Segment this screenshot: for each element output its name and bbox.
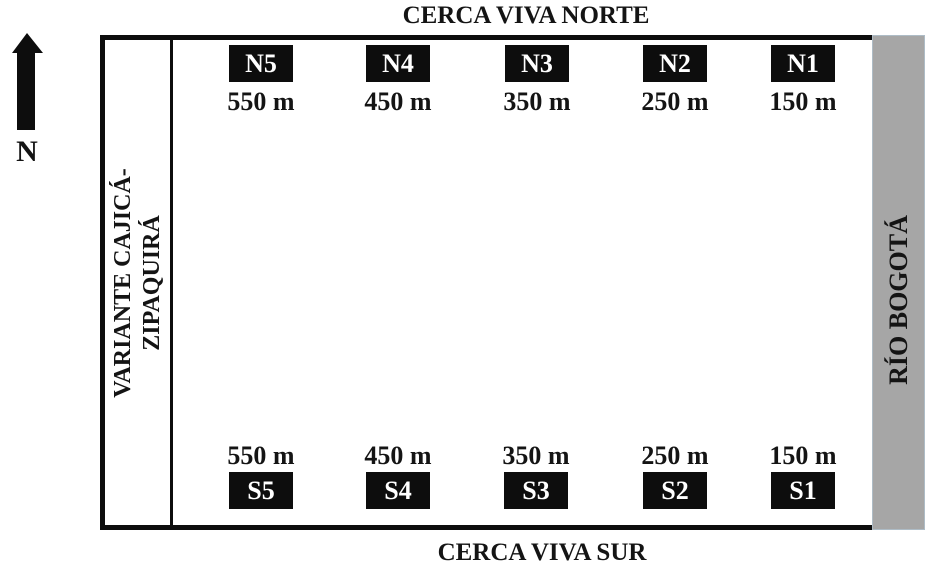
station-s4-distance: 450 m — [350, 443, 446, 469]
station-s1-box: S1 — [771, 472, 835, 509]
station-n2-box: N2 — [643, 45, 707, 82]
station-n5: N5 550 m — [213, 45, 309, 115]
road-column: VARIANTE CAJICÁ- ZIPAQUIRÁ — [105, 40, 173, 525]
station-s4-box: S4 — [366, 472, 430, 509]
north-fence-title: CERCA VIVA NORTE — [403, 3, 650, 29]
station-s2-box: S2 — [643, 472, 707, 509]
river-label: RÍO BOGOTÁ — [884, 215, 914, 385]
site-map-figure: N CERCA VIVA NORTE CERCA VIVA SUR VARIAN… — [0, 0, 932, 571]
station-n2-distance: 250 m — [627, 89, 723, 115]
station-n1: N1 150 m — [755, 45, 851, 115]
station-s5: 550 m S5 — [213, 443, 309, 509]
river-bar: RÍO BOGOTÁ — [872, 35, 925, 530]
station-s1-distance: 150 m — [755, 443, 851, 469]
road-label-line2: ZIPAQUIRÁ — [138, 168, 167, 398]
station-n2: N2 250 m — [627, 45, 723, 115]
station-n4-distance: 450 m — [350, 89, 446, 115]
station-n5-distance: 550 m — [213, 89, 309, 115]
station-s5-distance: 550 m — [213, 443, 309, 469]
compass-north-label: N — [10, 137, 44, 167]
station-s5-box: S5 — [229, 472, 293, 509]
station-s1: 150 m S1 — [755, 443, 851, 509]
station-s3-distance: 350 m — [488, 443, 584, 469]
road-label-line1: VARIANTE CAJICÁ- — [109, 168, 138, 398]
road-label: VARIANTE CAJICÁ- ZIPAQUIRÁ — [109, 168, 167, 398]
station-s3: 350 m S3 — [488, 443, 584, 509]
station-n3-box: N3 — [505, 45, 569, 82]
station-n1-box: N1 — [771, 45, 835, 82]
station-s4: 450 m S4 — [350, 443, 446, 509]
south-fence-title: CERCA VIVA SUR — [438, 540, 647, 566]
station-n4-box: N4 — [366, 45, 430, 82]
station-s2: 250 m S2 — [627, 443, 723, 509]
station-n3-distance: 350 m — [489, 89, 585, 115]
station-n4: N4 450 m — [350, 45, 446, 115]
north-arrow-icon — [12, 33, 44, 130]
station-n1-distance: 150 m — [755, 89, 851, 115]
station-n3: N3 350 m — [489, 45, 585, 115]
station-s3-box: S3 — [504, 472, 568, 509]
station-s2-distance: 250 m — [627, 443, 723, 469]
station-n5-box: N5 — [229, 45, 293, 82]
